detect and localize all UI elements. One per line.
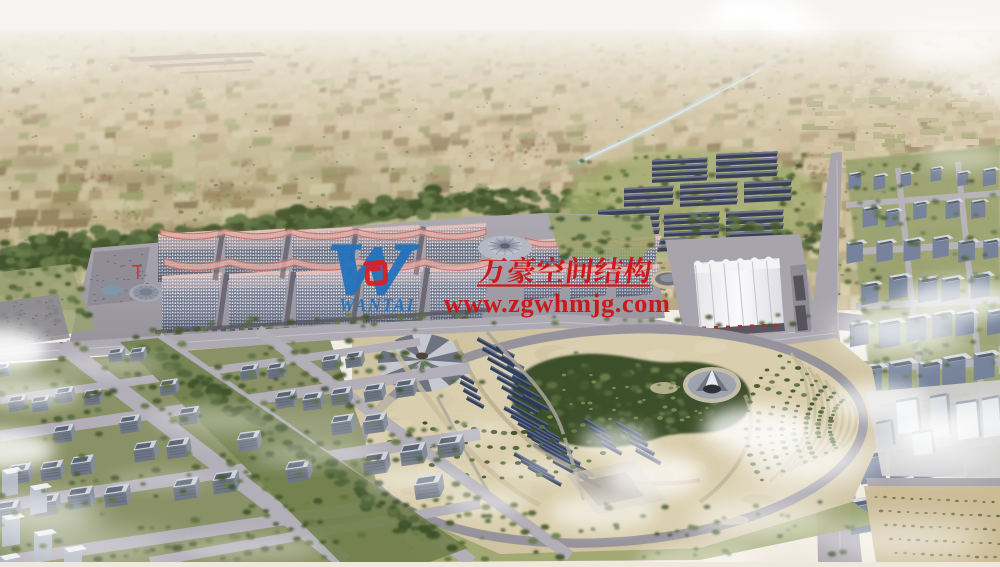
svg-text:www.zgwhmjg.com: www.zgwhmjg.com bbox=[444, 288, 671, 318]
svg-text:WANTAI: WANTAI bbox=[339, 295, 415, 315]
